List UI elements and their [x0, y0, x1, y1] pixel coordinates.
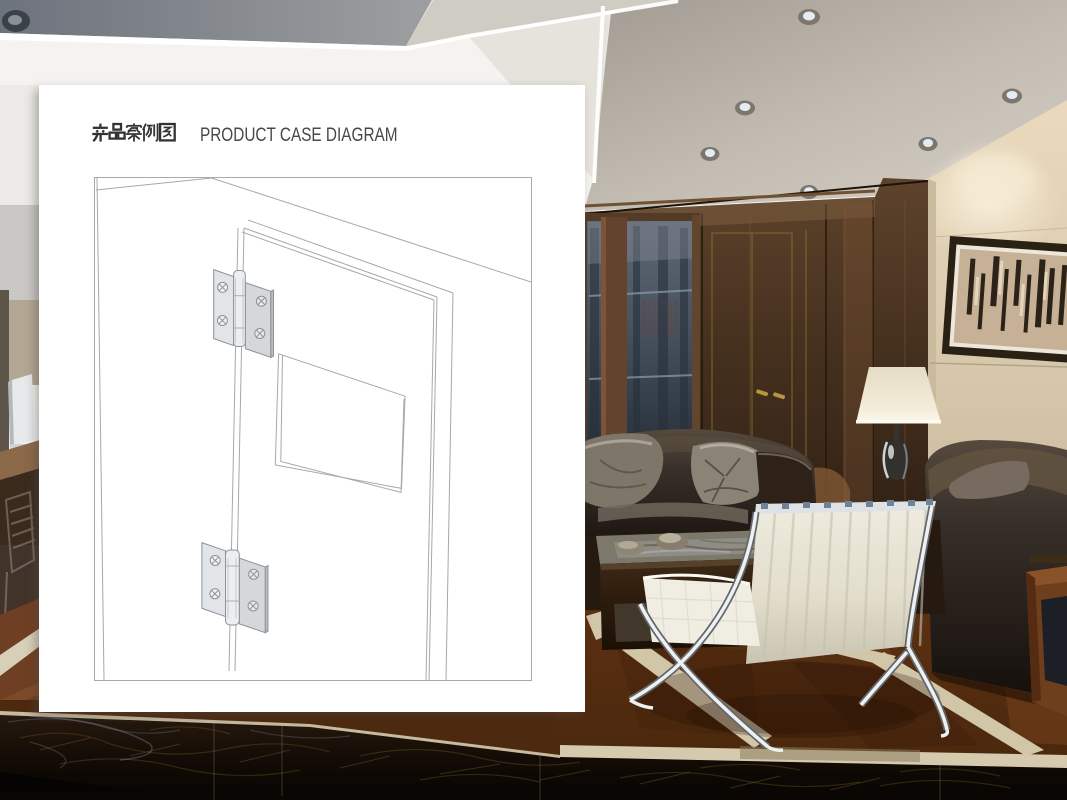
svg-text:PRODUCT CASE DIAGRAM: PRODUCT CASE DIAGRAM: [200, 123, 398, 145]
